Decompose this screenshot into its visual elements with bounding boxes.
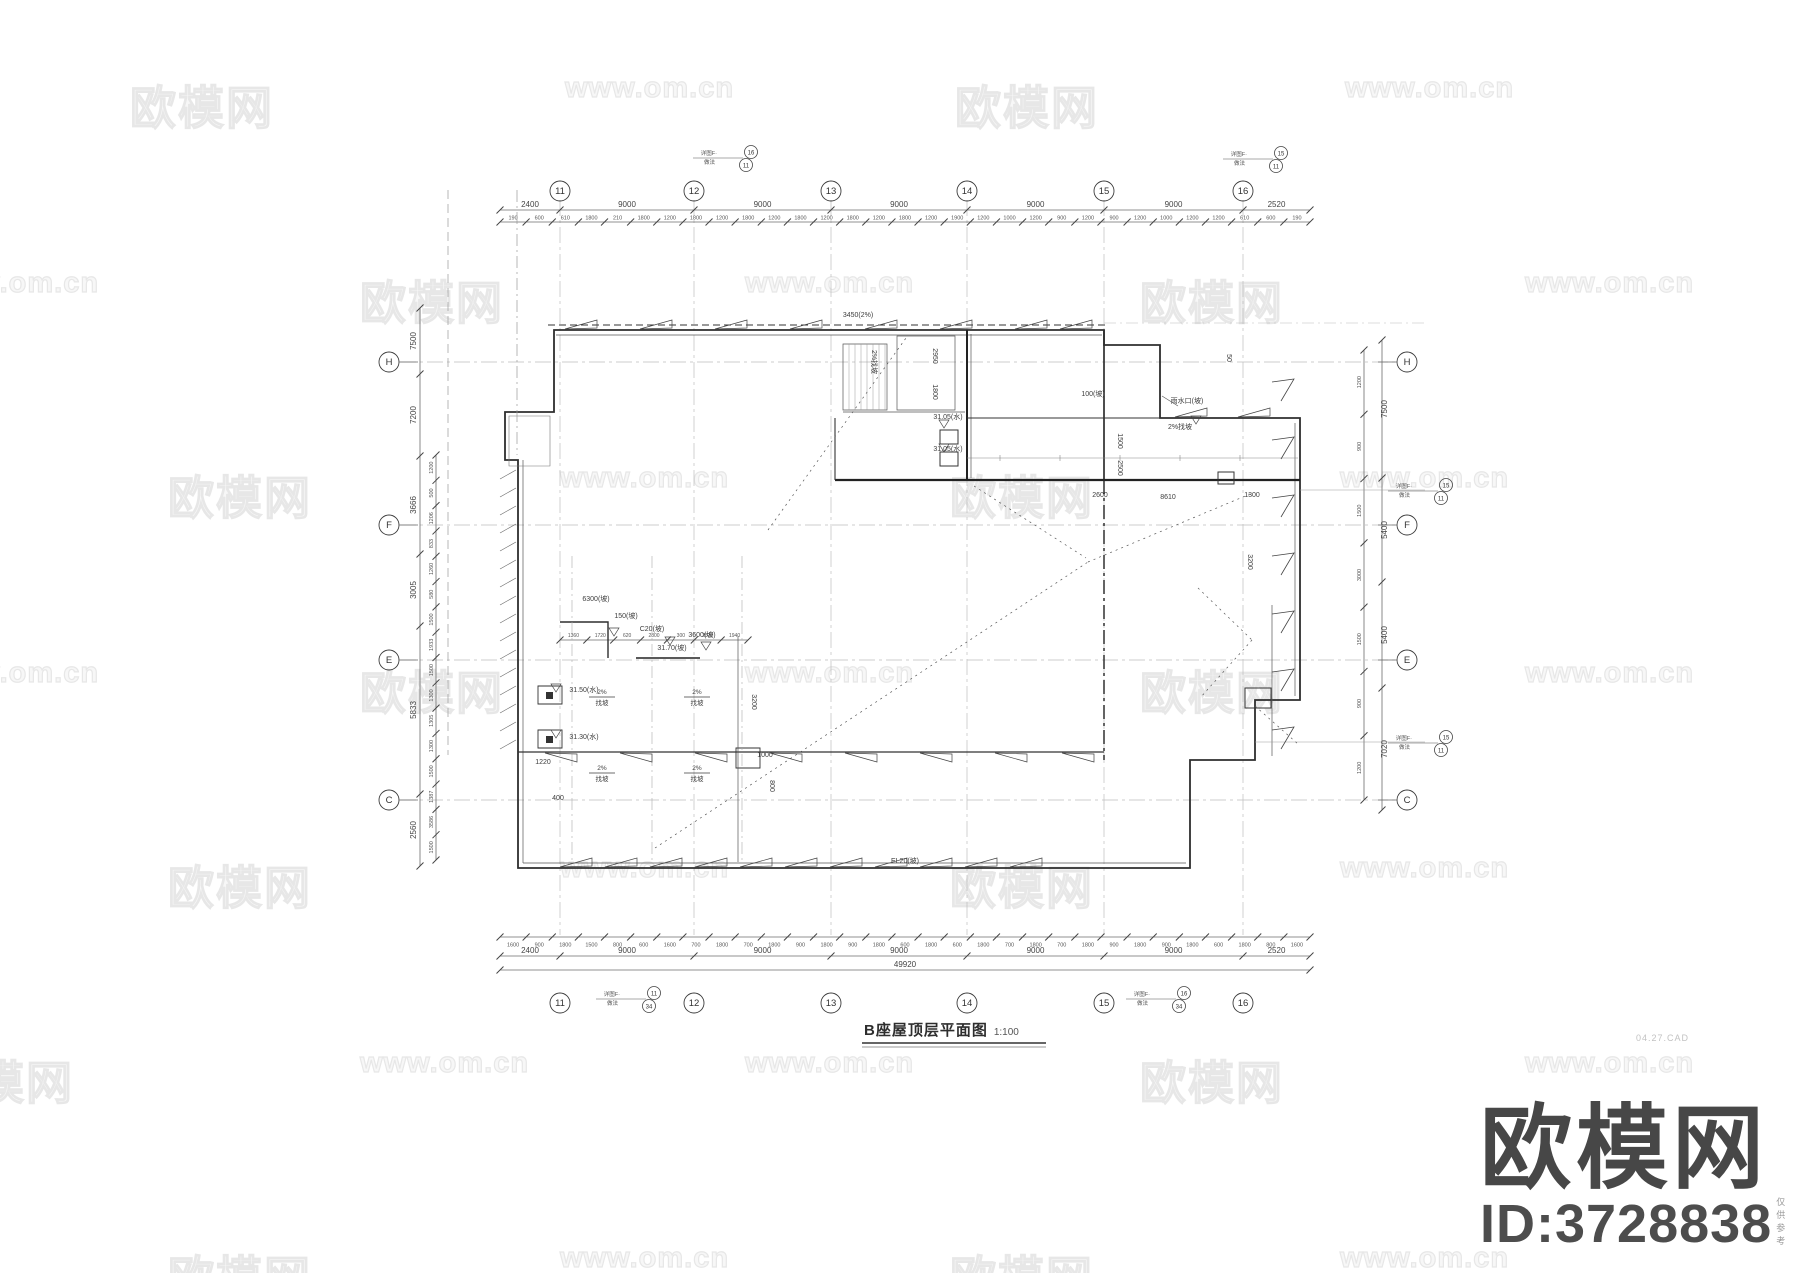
slope-word: 找坡 bbox=[691, 774, 705, 783]
elevation-marker bbox=[939, 420, 949, 428]
annotation-text: 1500 bbox=[1116, 433, 1123, 449]
annotation-text: 31.30(水) bbox=[569, 732, 598, 741]
dim-text-minor: 600 bbox=[639, 943, 648, 949]
dim-text-overall: 49920 bbox=[894, 960, 917, 969]
annotation-text: 雨水口(坡) bbox=[1171, 396, 1204, 405]
drain-leader bbox=[1272, 669, 1294, 691]
dim-text-minor: 1800 bbox=[690, 216, 702, 222]
roof-drain-box bbox=[940, 452, 958, 466]
dim-text-minor: 1500 bbox=[1357, 633, 1363, 645]
callout-label: 详图F· bbox=[701, 149, 717, 157]
dim-text-minor: 1200 bbox=[1186, 216, 1198, 222]
dim-text-minor: 900 bbox=[796, 943, 805, 949]
annotation-text: 2600 bbox=[1092, 492, 1108, 499]
annotation-text: 2%找坡 bbox=[870, 350, 879, 374]
dim-text-minor: 1800 bbox=[820, 943, 832, 949]
dim-text-minor: 700 bbox=[1005, 943, 1014, 949]
dim-text-minor: 1200 bbox=[1082, 216, 1094, 222]
annotation-text: 31.05(水) bbox=[933, 412, 962, 421]
dim-text-major: 2520 bbox=[1268, 200, 1286, 209]
slope-flag bbox=[920, 753, 952, 762]
dim-text-major: 9000 bbox=[618, 200, 636, 209]
slope-word: 找坡 bbox=[596, 698, 610, 707]
slope-flag bbox=[650, 858, 682, 867]
axis-bubble-label: F bbox=[1404, 520, 1410, 531]
axis-bubble-label: 11 bbox=[555, 998, 565, 1009]
dim-text-minor: 1200 bbox=[664, 216, 676, 222]
annotation-text: 1300 bbox=[1244, 492, 1260, 499]
slope-flag bbox=[920, 858, 952, 867]
slope-flag bbox=[785, 858, 817, 867]
annotation-text: 1220 bbox=[535, 759, 551, 766]
dim-text-minor: 1800 bbox=[638, 216, 650, 222]
dim-text-major: 5833 bbox=[409, 701, 418, 719]
dim-text-minor: 300 bbox=[677, 633, 686, 639]
annotation-text: 400 bbox=[552, 795, 564, 802]
edge-hatch bbox=[500, 614, 516, 623]
dim-text-minor: 700 bbox=[1057, 943, 1066, 949]
slope-flag bbox=[695, 753, 727, 762]
slope-flag bbox=[605, 858, 637, 867]
callout-num: 11 bbox=[1438, 749, 1445, 755]
dim-text-minor: 1500 bbox=[585, 943, 597, 949]
dim-text-major: 9000 bbox=[618, 946, 636, 955]
dim-text-minor: 1500 bbox=[429, 765, 435, 777]
axis-bubble-label: 13 bbox=[826, 186, 837, 197]
dim-text-minor: 1200 bbox=[925, 216, 937, 222]
dim-text-minor: 1720 bbox=[595, 633, 606, 639]
elevation-marker bbox=[701, 642, 711, 650]
dim-text-minor: 1500 bbox=[429, 841, 435, 853]
axis-bubble-label: H bbox=[386, 357, 393, 368]
pad-mark bbox=[546, 736, 553, 743]
annotation-text: 8610 bbox=[1160, 494, 1176, 501]
dim-text-minor: 2800 bbox=[648, 633, 659, 639]
ridge-line bbox=[1198, 588, 1252, 640]
callout-num: 15 bbox=[1443, 484, 1450, 490]
dim-text-minor: 1200 bbox=[1134, 216, 1146, 222]
dim-text-major: 9000 bbox=[754, 200, 772, 209]
dim-text-minor: 833 bbox=[429, 539, 435, 548]
drawing-title-block: B座屋顶层平面图1:100 bbox=[864, 1019, 1019, 1040]
callout-label: 做法 bbox=[1399, 743, 1411, 751]
dim-text-minor: 1260 bbox=[429, 563, 435, 575]
callout-num: 11 bbox=[1438, 497, 1445, 503]
annotation-text: 2500 bbox=[1116, 460, 1123, 476]
axis-bubble-label: 15 bbox=[1099, 186, 1110, 197]
annotation-text: EL20(坡) bbox=[891, 856, 919, 865]
dim-text-major: 5400 bbox=[1380, 521, 1389, 539]
dim-text-minor: 1800 bbox=[873, 943, 885, 949]
dim-text-minor: 1800 bbox=[742, 216, 754, 222]
callout-num: 11 bbox=[1273, 165, 1280, 171]
annotation-text: 100(坡) bbox=[1081, 389, 1104, 398]
dim-text-minor: 900 bbox=[1057, 216, 1066, 222]
annotation-text: 6300(坡) bbox=[582, 594, 609, 603]
dim-text-minor: 1800 bbox=[1134, 943, 1146, 949]
ridge-line bbox=[1088, 494, 1250, 562]
dim-text-minor: 1800 bbox=[585, 216, 597, 222]
dim-text-minor: 900 bbox=[848, 943, 857, 949]
dim-text-minor: 1933 bbox=[429, 639, 435, 651]
drawing-scale: 1:100 bbox=[994, 1027, 1019, 1038]
slope-pct: 2% bbox=[692, 689, 702, 696]
dim-text-minor: 500 bbox=[429, 488, 435, 497]
dim-text-minor: 1800 bbox=[847, 216, 859, 222]
dim-text-minor: 1800 bbox=[1239, 943, 1251, 949]
dim-text-minor: 1500 bbox=[429, 664, 435, 676]
callout-label: 详图F· bbox=[1231, 150, 1247, 158]
dim-text-major: 9000 bbox=[1165, 200, 1183, 209]
callout-num: 11 bbox=[743, 164, 750, 170]
dim-text-minor: 900 bbox=[1357, 699, 1363, 708]
drain-leader bbox=[1272, 495, 1294, 517]
axis-bubble-label: 11 bbox=[555, 186, 565, 197]
axis-bubble-label: 16 bbox=[1238, 186, 1249, 197]
dim-text-minor: 190 bbox=[1292, 216, 1301, 222]
equipment-pad bbox=[1245, 688, 1271, 708]
slope-flag bbox=[965, 858, 997, 867]
dim-text-minor: 1900 bbox=[951, 216, 963, 222]
dim-text-minor: 1200 bbox=[1357, 762, 1363, 774]
dim-text-minor: 1600 bbox=[1291, 943, 1303, 949]
vent-shaft bbox=[509, 416, 550, 466]
callout-num: 15 bbox=[1443, 736, 1450, 742]
edge-hatch bbox=[500, 596, 516, 605]
elevation-marker bbox=[551, 684, 561, 692]
dim-text-minor: 1600 bbox=[664, 943, 676, 949]
edge-hatch bbox=[500, 578, 516, 587]
dim-text-major: 2400 bbox=[521, 946, 539, 955]
dim-text-minor: 1200 bbox=[1357, 376, 1363, 388]
axis-bubble-label: E bbox=[1404, 655, 1410, 666]
elevation-marker bbox=[609, 628, 619, 636]
dim-text-major: 7500 bbox=[409, 332, 418, 350]
dim-text-major: 7500 bbox=[1380, 400, 1389, 418]
callout-label: 做法 bbox=[704, 158, 716, 166]
slope-pct: 2% bbox=[597, 689, 607, 696]
dim-text-major: 9000 bbox=[890, 946, 908, 955]
axis-bubble-label: 16 bbox=[1238, 998, 1249, 1009]
callout-label: 详图F· bbox=[1396, 734, 1412, 742]
dim-text-minor: 1200 bbox=[977, 216, 989, 222]
dim-text-minor: 1800 bbox=[1186, 943, 1198, 949]
edge-hatch bbox=[500, 722, 516, 731]
dim-text-minor: 1800 bbox=[559, 943, 571, 949]
ridge-line bbox=[1200, 640, 1252, 698]
annotation-text: 31.50(水) bbox=[569, 685, 598, 694]
edge-hatch bbox=[500, 686, 516, 695]
slope-word: 找坡 bbox=[596, 774, 610, 783]
dim-text-minor: 600 bbox=[535, 216, 544, 222]
ridge-line bbox=[768, 338, 906, 530]
callout-num: 11 bbox=[651, 992, 658, 998]
edge-hatch bbox=[500, 470, 516, 479]
dim-text-minor: 1800 bbox=[794, 216, 806, 222]
dim-text-minor: 1800 bbox=[1082, 943, 1094, 949]
dim-text-minor: 600 bbox=[1214, 943, 1223, 949]
roof-drain-box bbox=[1218, 472, 1234, 484]
dim-text-minor: 1305 bbox=[429, 715, 435, 727]
dim-text-major: 9000 bbox=[1027, 200, 1045, 209]
pad-mark bbox=[546, 692, 553, 699]
callout-label: 做法 bbox=[1399, 491, 1411, 499]
dim-text-major: 2400 bbox=[521, 200, 539, 209]
dim-text-minor: 1200 bbox=[1212, 216, 1224, 222]
slope-flag bbox=[640, 320, 672, 329]
dim-text-major: 3666 bbox=[409, 496, 418, 514]
dim-text-minor: 600 bbox=[953, 943, 962, 949]
stair-outline bbox=[843, 344, 887, 410]
edge-hatch bbox=[500, 740, 516, 749]
dim-text-major: 9000 bbox=[890, 200, 908, 209]
dim-text-major: 2520 bbox=[1268, 946, 1286, 955]
date-code: 04.27.CAD bbox=[1636, 1033, 1689, 1043]
asset-id: ID:3728838 bbox=[1480, 1196, 1772, 1253]
axis-bubble-label: 15 bbox=[1099, 998, 1110, 1009]
dim-text-minor: 700 bbox=[691, 943, 700, 949]
annotation-text: 800 bbox=[768, 780, 775, 792]
dim-text-minor: 580 bbox=[429, 590, 435, 599]
dim-text-minor: 1500 bbox=[429, 613, 435, 625]
slope-pct: 2% bbox=[692, 765, 702, 772]
floorplan-canvas: 111112121313141415151616HHFFEECC24009000… bbox=[0, 0, 1800, 1273]
annotation-text: 3600(坡) bbox=[688, 630, 715, 639]
dim-text-minor: 1200 bbox=[873, 216, 885, 222]
drain-leader bbox=[1272, 553, 1294, 575]
dim-text-minor: 900 bbox=[1357, 442, 1363, 451]
dim-text-minor: 1300 bbox=[429, 689, 435, 701]
axis-bubble-label: C bbox=[386, 795, 393, 806]
ridge-line bbox=[974, 486, 1086, 558]
slope-flag bbox=[1010, 858, 1042, 867]
callout-num: 34 bbox=[646, 1005, 653, 1011]
slope-flag bbox=[695, 858, 727, 867]
callout-num: 16 bbox=[1181, 992, 1188, 998]
dim-text-minor: 1206 bbox=[429, 512, 435, 524]
dim-text-minor: 1800 bbox=[925, 943, 937, 949]
dim-text-minor: 1500 bbox=[1357, 505, 1363, 517]
slope-flag bbox=[560, 858, 592, 867]
annotation-text: 150(坡) bbox=[614, 611, 637, 620]
slope-flag bbox=[845, 753, 877, 762]
dim-text-minor: 620 bbox=[623, 633, 632, 639]
edge-hatch bbox=[500, 632, 516, 641]
annotation-text: 1800 bbox=[931, 384, 938, 400]
annotation-text: 1000 bbox=[757, 752, 773, 759]
dim-text-minor: 1600 bbox=[507, 943, 519, 949]
annotation-text: C20(坡) bbox=[640, 624, 665, 633]
drain-leader bbox=[1272, 379, 1294, 401]
slope-flag bbox=[1062, 753, 1094, 762]
dim-text-major: 5400 bbox=[1380, 626, 1389, 644]
dim-text-minor: 1387 bbox=[429, 791, 435, 803]
slope-flag bbox=[830, 858, 862, 867]
annotation-text: 50 bbox=[1225, 354, 1232, 362]
slope-flag bbox=[995, 753, 1027, 762]
axis-bubble-label: E bbox=[386, 655, 392, 666]
dim-text-minor: 1940 bbox=[729, 633, 740, 639]
annotation-text: 2%找坡 bbox=[1168, 422, 1192, 431]
axis-bubble-label: 12 bbox=[689, 998, 700, 1009]
annotation-text: 3450(2%) bbox=[843, 312, 873, 319]
annotation-text: 3200 bbox=[1246, 554, 1253, 570]
callout-label: 做法 bbox=[1234, 159, 1246, 167]
callout-label: 详图F· bbox=[1396, 482, 1412, 490]
axis-bubble-label: C bbox=[1404, 795, 1411, 806]
callout-label: 详图F· bbox=[604, 990, 620, 998]
callout-label: 做法 bbox=[607, 999, 619, 1007]
edge-hatch bbox=[500, 704, 516, 713]
dim-text-major: 7200 bbox=[409, 406, 418, 424]
edge-hatch bbox=[500, 560, 516, 569]
edge-hatch bbox=[500, 668, 516, 677]
dim-text-minor: 1200 bbox=[768, 216, 780, 222]
callout-num: 15 bbox=[1278, 152, 1285, 158]
slope-flag bbox=[770, 753, 802, 762]
dim-text-minor: 610 bbox=[561, 216, 570, 222]
slope-flag bbox=[1015, 320, 1047, 329]
callout-num: 34 bbox=[1176, 1005, 1183, 1011]
dim-text-minor: 210 bbox=[613, 216, 622, 222]
slope-flag bbox=[620, 753, 652, 762]
dim-text-minor: 1800 bbox=[716, 943, 728, 949]
dim-text-minor: 1200 bbox=[820, 216, 832, 222]
roof-drain-box bbox=[940, 430, 958, 444]
brand-note: 仅供参考 bbox=[1776, 1195, 1790, 1253]
dim-text-minor: 1300 bbox=[429, 740, 435, 752]
edge-hatch bbox=[500, 650, 516, 659]
ridge-line bbox=[1255, 706, 1298, 744]
drain-leader bbox=[1272, 611, 1294, 633]
room-outline bbox=[897, 336, 955, 410]
axis-bubble-label: H bbox=[1404, 357, 1411, 368]
dim-text-minor: 900 bbox=[1109, 216, 1118, 222]
dim-text-minor: 1000 bbox=[1003, 216, 1015, 222]
dim-text-major: 3005 bbox=[409, 581, 418, 599]
dim-text-major: 9000 bbox=[1027, 946, 1045, 955]
dim-text-minor: 1800 bbox=[899, 216, 911, 222]
callout-label: 做法 bbox=[1137, 999, 1149, 1007]
dim-text-minor: 190 bbox=[508, 216, 517, 222]
dim-text-minor: 1000 bbox=[1160, 216, 1172, 222]
callout-label: 详图F· bbox=[1134, 990, 1150, 998]
dim-text-minor: 1800 bbox=[977, 943, 989, 949]
dim-text-minor: 1200 bbox=[716, 216, 728, 222]
axis-bubble-label: 14 bbox=[962, 998, 973, 1009]
dim-text-minor: 3586 bbox=[429, 816, 435, 828]
annotation-text: 31.05(水) bbox=[933, 444, 962, 453]
dim-text-major: 9000 bbox=[754, 946, 772, 955]
dim-text-major: 9000 bbox=[1165, 946, 1183, 955]
slope-word: 找坡 bbox=[691, 698, 705, 707]
annotation-text: 31.70(坡) bbox=[657, 643, 686, 652]
dim-text-minor: 600 bbox=[1266, 216, 1275, 222]
axis-bubble-label: 12 bbox=[689, 186, 700, 197]
edge-hatch bbox=[500, 506, 516, 515]
slope-pct: 2% bbox=[597, 765, 607, 772]
edge-hatch bbox=[500, 542, 516, 551]
cad-sheet: 欧模网www.om.cn欧模网www.om.cnwww.om.cn欧模网www.… bbox=[0, 0, 1800, 1273]
dim-text-minor: 900 bbox=[1109, 943, 1118, 949]
dim-text-minor: 1200 bbox=[1030, 216, 1042, 222]
drain-leader bbox=[1272, 437, 1294, 459]
slope-flag bbox=[740, 858, 772, 867]
site-logo: 欧模网 bbox=[1480, 1103, 1790, 1195]
annotation-text: 3200 bbox=[750, 694, 757, 710]
dim-text-minor: 700 bbox=[744, 943, 753, 949]
roof-outline bbox=[505, 330, 1300, 868]
dim-text-minor: 610 bbox=[1240, 216, 1249, 222]
dim-text-major: 7020 bbox=[1380, 740, 1389, 758]
dim-text-minor: 3000 bbox=[1357, 569, 1363, 581]
annotation-text: 2950 bbox=[931, 348, 938, 364]
drawing-title: B座屋顶层平面图 bbox=[864, 1022, 988, 1039]
axis-bubble-label: 13 bbox=[826, 998, 837, 1009]
ridge-line bbox=[655, 562, 1088, 848]
callout-num: 16 bbox=[748, 151, 755, 157]
axis-bubble-label: F bbox=[386, 520, 392, 531]
site-brand: 欧模网 ID:3728838 仅供参考 bbox=[1480, 1103, 1790, 1253]
dim-text-minor: 1360 bbox=[568, 633, 579, 639]
axis-bubble-label: 14 bbox=[962, 186, 973, 197]
dim-text-major: 2560 bbox=[409, 821, 418, 839]
edge-hatch bbox=[500, 488, 516, 497]
dim-text-minor: 1200 bbox=[429, 462, 435, 474]
